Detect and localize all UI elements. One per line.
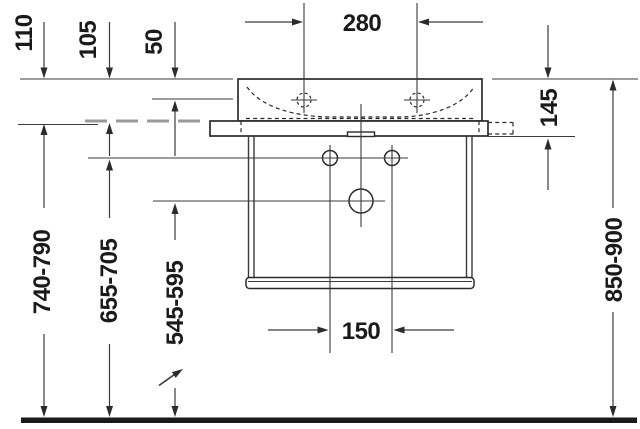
drawing-canvas: 280 150 110 105 50 145 <box>0 0 640 429</box>
arrow-up-icon <box>41 124 48 135</box>
dimension-145: 145 <box>536 25 563 190</box>
arrow-down-icon <box>106 68 113 79</box>
dimension-150: 150 <box>268 318 454 345</box>
arrow-up-icon <box>106 123 113 134</box>
dimension-280: 280 <box>245 10 483 37</box>
arrow-left-icon <box>394 327 405 334</box>
dimension-850-900: 850-900 <box>601 80 628 418</box>
arrow-up-icon <box>106 160 113 171</box>
arrow-left-icon <box>418 19 429 26</box>
basin-outline <box>238 79 482 121</box>
dim-105-label: 105 <box>75 21 102 60</box>
dim-280-label: 280 <box>343 10 382 37</box>
arrow-up-icon <box>172 203 179 214</box>
dimension-655-705: 655-705 <box>96 160 123 418</box>
installation-diagram: 280 150 110 105 50 145 <box>0 0 640 429</box>
dim-50-label: 50 <box>141 29 168 55</box>
arrow-right-icon <box>292 19 303 26</box>
dim-145-label: 145 <box>536 89 563 128</box>
dimension-50: 50 <box>141 22 179 156</box>
dimension-110: 110 <box>11 14 48 135</box>
extension-lines <box>304 3 417 353</box>
towel-rail <box>246 278 474 289</box>
dim-850-900-label: 850-900 <box>601 218 628 303</box>
dim-150-label: 150 <box>342 318 381 345</box>
arrow-down-icon <box>41 406 48 417</box>
arrow-down-icon <box>545 68 552 79</box>
arrow-up-icon <box>545 139 552 150</box>
arrow-up-icon <box>610 80 617 91</box>
dim-110-label: 110 <box>11 14 38 51</box>
arrow-down-icon <box>172 406 179 417</box>
dim-740-790-label: 740-790 <box>29 230 56 315</box>
adjust-arrow-shaft <box>159 375 175 386</box>
dimension-545-595: 545-595 <box>159 203 189 417</box>
arrow-down-icon <box>172 68 179 79</box>
adjust-arrow-head <box>172 369 183 378</box>
dimension-740-790: 740-790 <box>29 134 56 417</box>
dim-545-595-label: 545-595 <box>162 261 189 346</box>
arrow-down-icon <box>106 406 113 417</box>
arrow-down-icon <box>41 68 48 79</box>
floor-line <box>21 418 637 424</box>
dim-655-705-label: 655-705 <box>96 239 123 324</box>
adjustability-arrow-icon <box>159 369 183 386</box>
arrow-down-icon <box>610 406 617 417</box>
arrow-right-icon <box>318 327 329 334</box>
arrow-up-icon <box>172 101 179 112</box>
dimension-105: 105 <box>75 21 113 156</box>
